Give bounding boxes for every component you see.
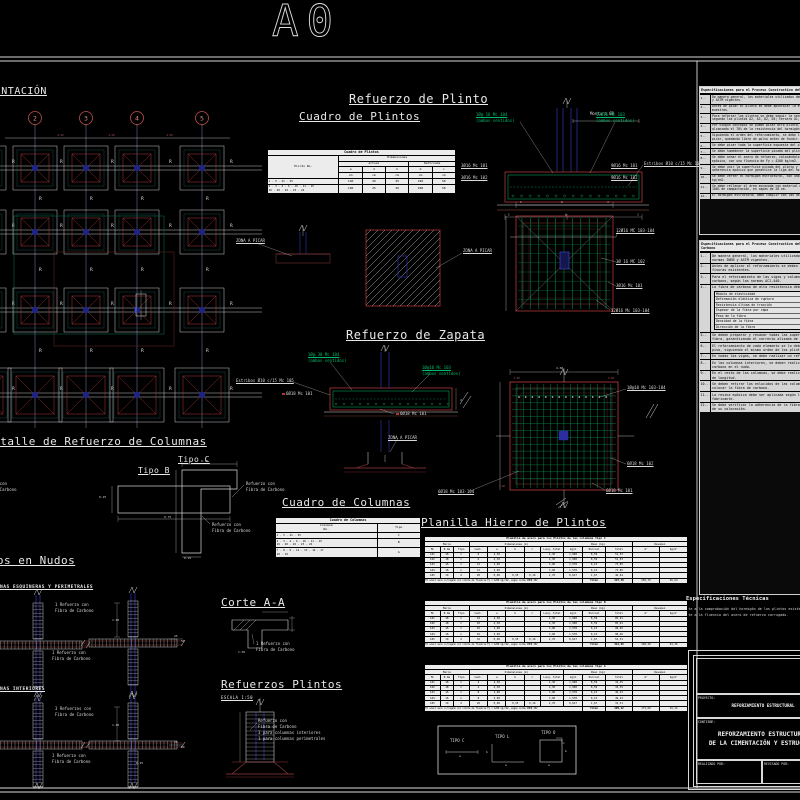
revisado-label: REVISADO POR: — [764, 762, 789, 766]
planilla-table: Planilla de acero para los Plintos de la… — [424, 600, 688, 648]
logo-box — [696, 658, 800, 694]
rp-label: 1 para columnas perimetrales — [258, 737, 325, 742]
rebar-label: 9Ø16 Mc 101 — [611, 164, 638, 169]
dim-label: 0.25 — [184, 556, 191, 560]
tech-line: Referente a la fluencia del acero de ref… — [674, 613, 788, 617]
spec-item: 9.-Se debe unir la superficie picada del… — [700, 164, 800, 174]
zona-picar-label: ZONA A PICAR — [388, 436, 417, 441]
realizado-label: REALIZADO POR: — [698, 762, 725, 766]
corte-label: 1 Refuerzo con — [256, 642, 290, 647]
rebar-label: 6Ø18 Mc 101 — [606, 489, 633, 494]
rebar-label: (ambos sentidos) — [308, 359, 347, 364]
fibra-label: Refuerzo con — [246, 482, 275, 487]
rebar-label: 1Ø@10 Mc 103 — [422, 366, 451, 371]
spec-item: 7.-Se debe humedecer la superficie picad… — [700, 148, 800, 154]
dim-label: 50 — [181, 745, 185, 749]
beam-label-r: R — [60, 301, 63, 307]
rebar-label: 3Ø16 Mc 101 — [616, 284, 643, 289]
beam-label-r: R — [39, 348, 42, 354]
dim-label: 25 — [174, 634, 178, 638]
plan-dim: 4.50 — [166, 133, 173, 137]
title-block: PROYECTO: REFORZAMIENTO ESTRUCTURAL CONT… — [688, 650, 800, 790]
fibra-label: Refuerzo con — [212, 523, 241, 528]
tipo-l-bar-label: TIPO L — [495, 735, 509, 740]
beam-label-r: R — [60, 386, 63, 392]
nudo-label: Fibra de Carbono — [55, 713, 94, 718]
beam-label-r: R — [39, 196, 42, 202]
spec-item: 12.-Se debe verificar la adherencia de l… — [700, 402, 800, 413]
spec-item: 3.-Para el reforzamiento de las vigas y … — [700, 273, 800, 284]
beam-label-r: R — [12, 223, 15, 229]
red-bullet — [396, 413, 399, 416]
beam-label-r: R — [141, 196, 144, 202]
beam-label-r: R — [169, 223, 172, 229]
rebar-label: 12Ø16 Mc 103 — [596, 113, 625, 118]
dim-label: 1.00 — [112, 723, 119, 727]
svg-label: 0.60 — [499, 485, 505, 488]
dim-label: c — [563, 741, 565, 745]
refuerzos-plintos-title: Refuerzos Plintos — [221, 678, 342, 691]
spec-item: 5.-Se deben preparar y resanar todas las… — [700, 332, 800, 343]
spec-item: 5.-Siguiendo el orden del reforzamiento,… — [700, 132, 800, 142]
beam-label-r: R — [230, 159, 233, 165]
red-bullet — [282, 393, 285, 396]
dim-label: 25 — [174, 740, 178, 744]
beam-label-r: R — [206, 348, 209, 354]
beam-label-r: R — [111, 386, 114, 392]
interiores-heading: COLUMNAS INTERIORES — [0, 687, 45, 692]
dim-label: b — [565, 749, 567, 753]
nudo-label: Fibra de Carbono — [55, 609, 94, 614]
rebar-label: 9Ø16 Mc 102 — [611, 176, 638, 181]
dim-label: a — [459, 754, 461, 758]
spec-item: 6.-Se debe picar toda la superficie expu… — [700, 142, 800, 148]
plan-dim: 4.50 — [108, 133, 115, 137]
beam-label-r: R — [12, 159, 15, 165]
plan-title: PLANTA DE CIMENTACIÓN — [0, 86, 47, 97]
revisado-box: REVISADO POR: — [762, 760, 800, 784]
contiene-box: CONTIENE: REFORZAMIENTO ESTRUCTURAL DE L… — [696, 718, 800, 760]
rebar-label: (ambos sentidos) — [422, 372, 461, 377]
tipo-o-bar-label: TIPO O — [541, 731, 555, 736]
rebar-label: 6Ø18 Mc 103-104 — [438, 490, 474, 495]
beam-label-r: R — [206, 267, 209, 273]
plan-dim: 4.50 — [57, 133, 64, 137]
beam-label-r: R — [169, 301, 172, 307]
beam-label-r: R — [169, 386, 172, 392]
spec-panel-plintos: Especificaciones para el Proceso Constru… — [699, 86, 800, 235]
rebar-label: 3Ø16 Mc 101 — [461, 164, 488, 169]
escala-label: ESCALA 1:50 — [221, 695, 253, 700]
grid-bubble-number: 5 — [200, 114, 204, 122]
cad-sheet: { "page": { "sheet_label": "A0" }, "colo… — [0, 0, 800, 800]
spec-item: 10.-Se deben retirar los enlucidos de la… — [700, 380, 800, 391]
zona-picar-label: ZONA A PICAR — [463, 249, 492, 254]
rebar-label: 1Ø@10 Mc 103-104 — [627, 386, 666, 391]
svg-label: 0.60 — [608, 377, 614, 380]
beam-label-r: R — [206, 196, 209, 202]
spec-item: 3.-Para reforzar los plintos se debe seg… — [700, 113, 800, 123]
spec-item: 11.-La resina epóxica debe ser aplicada … — [700, 391, 800, 402]
spec-item: 8.-En las columnas interiores, se deben … — [700, 359, 800, 370]
estribos-label: Estribos Ø10 c/15 Mc 105 — [236, 379, 294, 384]
beam-label-r: R — [111, 223, 114, 229]
proyecto-value: REFORZAMIENTO ESTRUCTURAL — [697, 703, 800, 708]
beam-label-r: R — [230, 301, 233, 307]
spec-item: 2.-Antes de aplicar el reforzamiento se … — [700, 263, 800, 274]
contiene-label: CONTIENE: — [698, 720, 715, 724]
planilla-table: Planilla de acero para los Plintos de la… — [424, 664, 688, 712]
beam-label-r: R — [90, 267, 93, 273]
dim-label: b — [486, 750, 488, 754]
corte-label: Fibra de Carbono — [256, 648, 295, 653]
spec-item: 4.-Por ningún concepto se puede picar ot… — [700, 123, 800, 133]
beam-label-r: R — [141, 267, 144, 273]
beam-label-r: R — [230, 386, 233, 392]
beam-label-r: R — [90, 196, 93, 202]
tech-specs-title: Especificaciones Técnicas — [686, 596, 769, 602]
fibra-label: Fibra de Carbono — [0, 488, 17, 493]
rebar-label: (ambos sentidos) — [476, 119, 515, 124]
svg-label: C — [508, 213, 510, 217]
dim-label: 1.00 — [112, 618, 119, 622]
spec-item: 9.-En el resto de las columnas, se debe … — [700, 370, 800, 381]
dim-label: 0.25 — [99, 495, 106, 499]
dim-label: 50 — [181, 639, 185, 643]
detalle-columnas-title: Detalle de Refuerzo de Columnas — [0, 435, 207, 448]
fibra-label: Refuerzo con — [0, 482, 7, 487]
spec-panel-fibra: Especificaciones para el Proceso Constru… — [699, 240, 800, 595]
dim-label: a — [505, 763, 507, 767]
spec-item: 1.-De manera general, los materiales uti… — [700, 94, 800, 104]
beam-label-r: R — [169, 159, 172, 165]
realizado-box: REALIZADO POR: — [696, 760, 762, 784]
beam-label-r: R — [60, 223, 63, 229]
refuerzo-zapata-title: Refuerzo de Zapata — [346, 328, 485, 342]
rp-label: Fibra de Carbono — [258, 725, 297, 730]
tipo-c-bar-label: TIPO C — [450, 739, 464, 744]
proyecto-box: PROYECTO: REFORZAMIENTO ESTRUCTURAL — [696, 694, 800, 718]
beam-label-r: R — [60, 159, 63, 165]
planilla-title: Planilla Hierro de Plintos — [421, 516, 606, 529]
planilla-table: Planilla de acero para los Plintos de la… — [424, 536, 688, 584]
spec-item: 2.-Antes de picar el plinto se debe apun… — [700, 104, 800, 114]
nudo-label: Fibra de Carbono — [52, 760, 91, 765]
refuerzo-plinto-title: Refuerzo de Plinto — [349, 92, 488, 106]
estribos-label: Estribos Ø10 c/15 Mc 105 — [644, 162, 702, 167]
fibra-label: Fibra de Carbono — [212, 529, 251, 534]
dim-label: 0.75 — [164, 515, 171, 519]
spec-item: 10.-Se debe verter el hormigón estructur… — [700, 174, 800, 184]
rebar-label: 6Ø18 Mc 101 — [396, 412, 427, 417]
contiene-line1: REFORZAMIENTO ESTRUCTURAL — [697, 731, 800, 738]
dim-label: 0.75 — [201, 459, 208, 463]
rebar-label: 1Ø@ 16 Mc 104 — [476, 113, 507, 118]
cuadro-columnas-title: Cuadro de Columnas — [282, 496, 410, 509]
beam-label-r: R — [111, 301, 114, 307]
cuadro-plintos-title: Cuadro de Plintos — [299, 110, 420, 123]
dim-label: 1.05 — [238, 650, 245, 654]
spec-header: Especificaciones para el Proceso Constru… — [700, 241, 800, 252]
beam-label-r: R — [230, 223, 233, 229]
cuadro-plintos-table: Cuadro de PlintosPlinto No.DimensionesAc… — [267, 149, 456, 194]
contiene-line2: DE LA CIMENTACIÓN Y ESTRUCTURA — [697, 740, 800, 747]
proyecto-label: PROYECTO: — [698, 696, 715, 700]
tipo-b-title: Tipo B — [138, 466, 170, 475]
spec-item: 4.-La fibra de carbono de alta resistenc… — [700, 284, 800, 332]
nudo-label: 1 Refuerzo con — [55, 603, 89, 608]
svg-label: C — [637, 213, 639, 217]
nudo-label: 3 Refuerzos con — [55, 707, 91, 712]
rebar-label: 3Ø16 Mc 102 — [461, 176, 488, 181]
tech-line: Referente a la comprobación del hormigón… — [674, 607, 800, 611]
fibra-label: Fibra de Carbono — [246, 488, 285, 493]
rp-label: Refuerzo con — [258, 719, 287, 724]
dim-label: a — [548, 763, 550, 767]
beam-label-r: R — [39, 267, 42, 273]
spec-item: 1.-De manera general, los materiales uti… — [700, 252, 800, 263]
beam-label-r: R — [12, 386, 15, 392]
nudo-label: 1 Refuerzo con — [52, 754, 86, 759]
grid-bubble-number: 2 — [33, 114, 37, 122]
beam-label-r: R — [141, 348, 144, 354]
spec-item: 7.-En todas las vigas, se debe realizar … — [700, 353, 800, 359]
rebar-label: 12Ø16 Mc 103-104 — [611, 309, 650, 314]
spec-item: 11.-Se debe rellenar el área excavada co… — [700, 183, 800, 193]
grid-bubble-number: 3 — [84, 114, 88, 122]
nudo-label: 1 Refuerzo con — [52, 651, 86, 656]
spec-item: 8.-Se debe armar el acero de refuerzo, c… — [700, 154, 800, 164]
rp-label: 3 para columnas interiores — [258, 731, 321, 736]
cuadro-columnas-table: Cuadro de ColumnasColumnaNo.Tipo1 - 5 - … — [275, 517, 421, 558]
rebar-label: 3Ø 16 MC 102 — [616, 260, 645, 265]
beam-label-r: R — [90, 348, 93, 354]
spec-header: Especificaciones para el Proceso Constru… — [700, 87, 800, 94]
nudos-title: Refuerzos en Nudos — [0, 554, 75, 567]
rebar-label: 12Ø16 MC 103-104 — [616, 229, 655, 234]
svg-label: 0.60 — [514, 377, 520, 380]
rebar-label: 1Ø@ 30 Mc 104 — [308, 353, 339, 358]
beam-label-r: R — [111, 159, 114, 165]
svg-label: b — [561, 200, 563, 204]
corte-title: Corte A-A — [221, 596, 285, 609]
nudo-label: Fibra de Carbono — [52, 657, 91, 662]
dim-label: 4.60 — [556, 366, 563, 370]
spec-item: 6.-El reforzamiento de cada elemento se … — [700, 342, 800, 353]
rebar-label: 6Ø18 Mc 101 — [282, 392, 313, 397]
spec-item: 12.-El hormigón estructural debe cumplir… — [700, 193, 800, 199]
beam-label-r: R — [12, 301, 15, 307]
dim-label: 0.25 — [136, 761, 143, 765]
grid-bubble-number: 4 — [135, 114, 139, 122]
sheet-size-label: A0 — [272, 0, 341, 47]
zona-picar-label: ZONA A PICAR — [236, 239, 265, 244]
esquineras-heading: COLUMNAS ESQUINERAS Y PERIMETRALES — [0, 585, 93, 590]
rebar-label: 6Ø18 Mc 102 — [627, 462, 654, 467]
rebar-label: (ambos sentidos) — [596, 119, 635, 124]
